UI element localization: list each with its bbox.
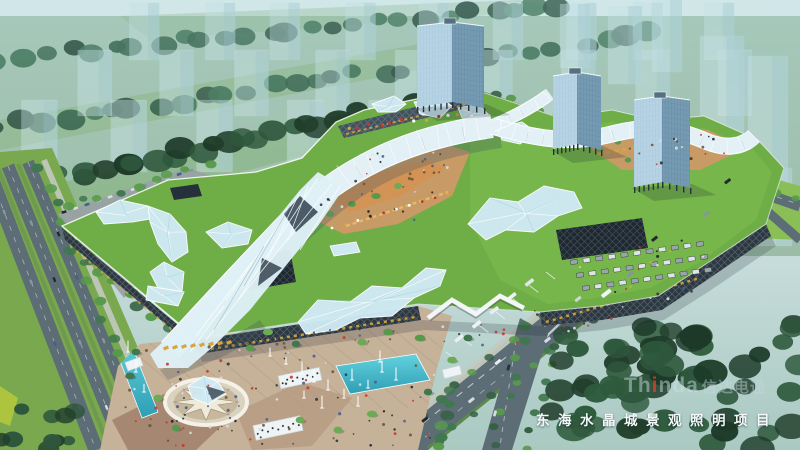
compass-emblem <box>165 376 247 425</box>
scene-svg <box>0 0 800 450</box>
architectural-rendering: Thinda信达电通 东海水晶城景观照明项目 <box>0 0 800 450</box>
